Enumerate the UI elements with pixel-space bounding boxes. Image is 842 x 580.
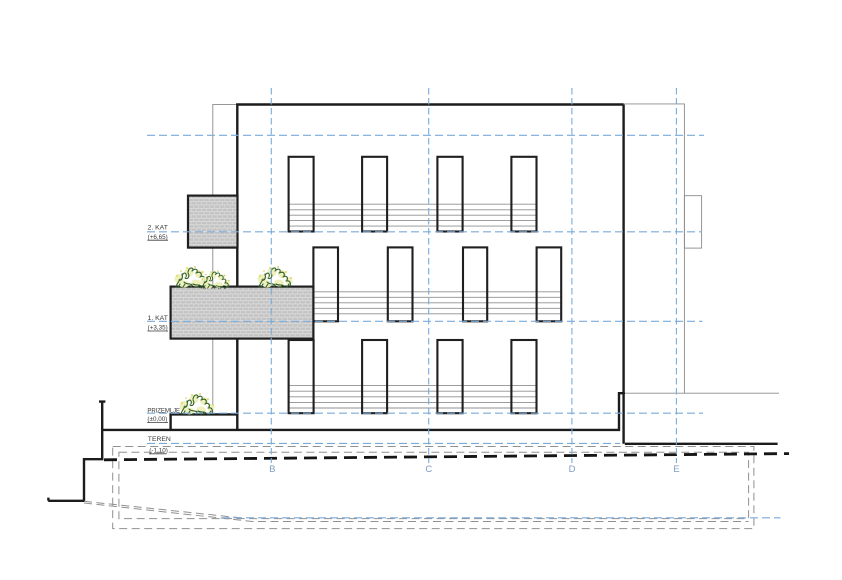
svg-text:C: C [425, 464, 432, 475]
svg-text:TEREN: TEREN [148, 436, 171, 443]
svg-text:(±0,00): (±0,00) [147, 416, 167, 423]
svg-text:E: E [673, 464, 679, 475]
svg-text:2. KAT: 2. KAT [148, 224, 168, 231]
svg-text:(+6,65): (+6,65) [148, 234, 168, 241]
svg-text:PRIZEMLJE: PRIZEMLJE [147, 408, 180, 415]
svg-text:(-1,10): (-1,10) [149, 447, 168, 454]
svg-text:1. KAT: 1. KAT [148, 315, 168, 322]
svg-text:(+3,35): (+3,35) [148, 325, 168, 332]
svg-text:B: B [269, 464, 275, 475]
svg-text:D: D [569, 464, 576, 475]
